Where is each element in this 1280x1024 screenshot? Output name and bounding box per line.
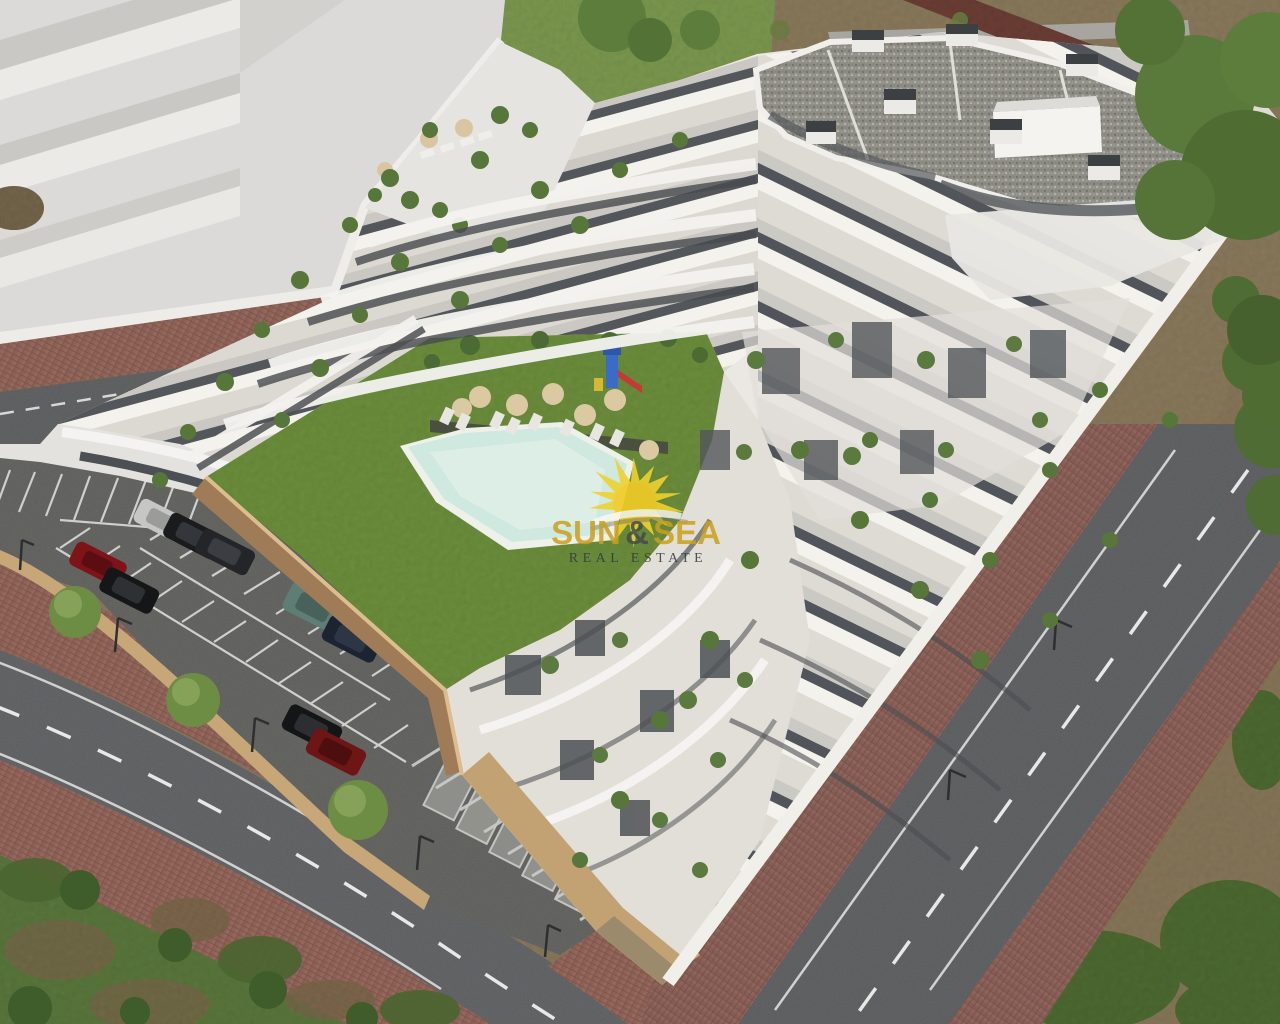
svg-text:SUN: SUN: [551, 514, 621, 551]
svg-text:&: &: [625, 514, 649, 551]
svg-text:SEA: SEA: [653, 514, 721, 551]
svg-text:REAL ESTATE: REAL ESTATE: [569, 551, 707, 566]
